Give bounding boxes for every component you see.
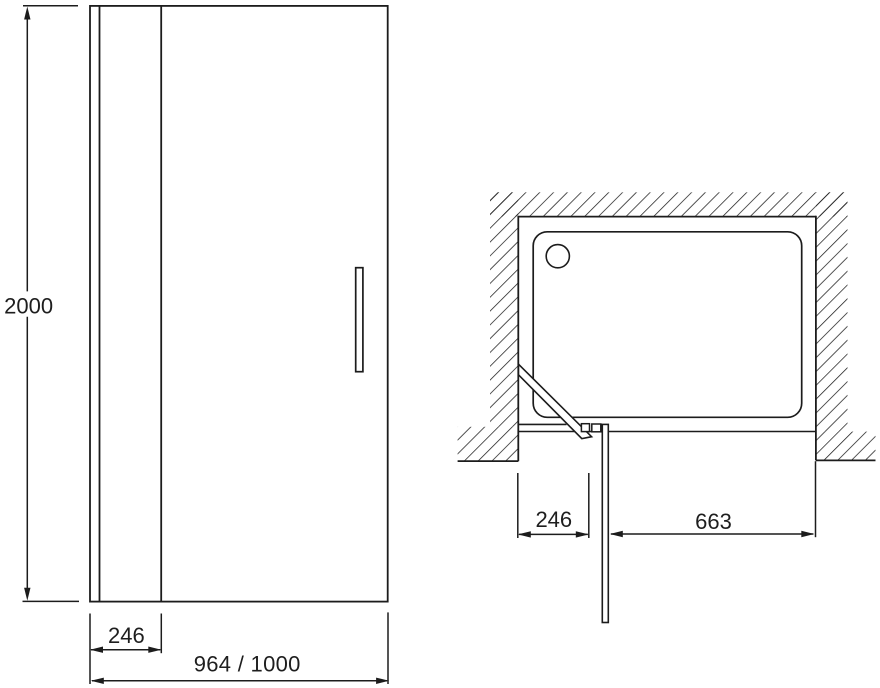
svg-text:663: 663 (695, 509, 732, 534)
svg-text:2000: 2000 (4, 294, 53, 319)
svg-text:246: 246 (108, 623, 145, 648)
svg-text:246: 246 (535, 507, 572, 532)
svg-text:964 / 1000: 964 / 1000 (194, 652, 301, 677)
